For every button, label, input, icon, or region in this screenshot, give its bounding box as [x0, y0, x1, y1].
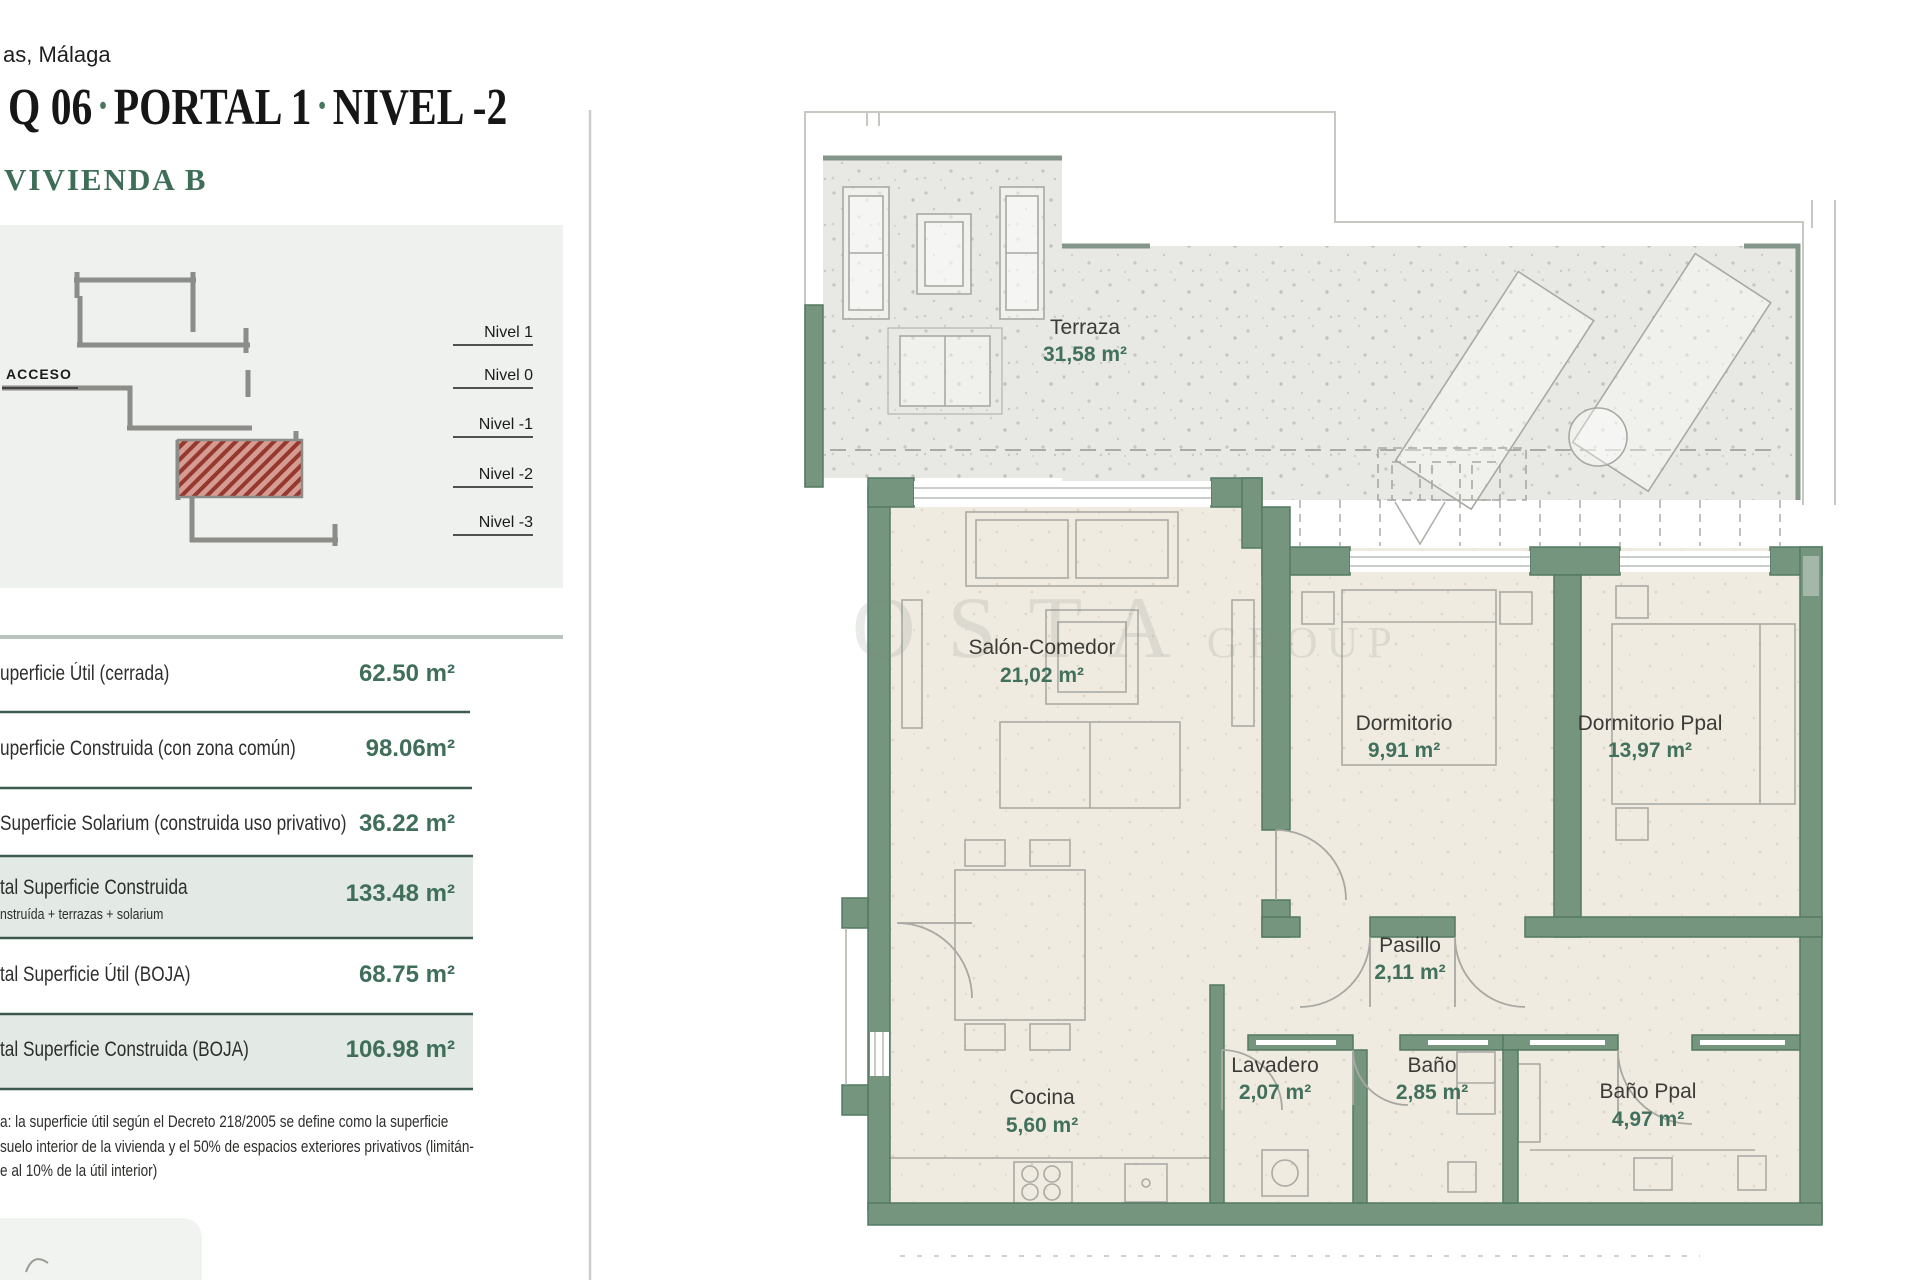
room-area-terraza: 31,58 m² — [965, 343, 1205, 367]
footnote-line: a: la superficie útil según el Decreto 2… — [0, 1112, 448, 1132]
table-rules — [0, 635, 563, 1089]
level-label-0: Nivel 0 — [433, 367, 533, 385]
table-row-label: tal Superficie Construida — [0, 876, 188, 900]
unit-subtitle: VIVIENDA B — [4, 162, 207, 198]
room-label-cocina: Cocina — [922, 1086, 1162, 1110]
stairs — [1300, 500, 1780, 546]
watermark-big-text: OSTA — [852, 580, 1203, 677]
room-label-pasillo: Pasillo — [1290, 934, 1530, 958]
level-label-minus3: Nivel -3 — [433, 514, 533, 532]
title-part-block: Q 06 — [8, 79, 92, 136]
location-text: as, Málaga — [3, 42, 111, 68]
title-dot-icon: · — [92, 81, 113, 130]
room-area-dormitorio-ppal: 13,97 m² — [1530, 739, 1770, 763]
table-row-value: 133.48 m² — [255, 880, 455, 908]
room-area-bano: 2,85 m² — [1312, 1081, 1552, 1105]
acceso-label: ACCESO — [6, 366, 72, 382]
room-label-salon-comedor: Salón-Comedor — [922, 636, 1162, 660]
level-label-minus1: Nivel -1 — [433, 416, 533, 434]
watermark-small-text: GROUP — [1207, 618, 1401, 667]
room-area-cocina: 5,60 m² — [922, 1114, 1162, 1138]
room-area-dormitorio: 9,91 m² — [1284, 739, 1524, 763]
room-label-terraza: Terraza — [965, 316, 1205, 340]
table-row-value: 36.22 m² — [255, 810, 455, 838]
floorplan-page: { "header": { "location": "as, Málaga", … — [0, 0, 1920, 1280]
footnote-line: e al 10% de la útil interior) — [0, 1161, 157, 1181]
section-diagram — [0, 225, 563, 588]
table-row-label: uperficie Útil (cerrada) — [0, 662, 169, 686]
table-row-label: uperficie Construida (con zona común) — [0, 737, 296, 761]
table-row-value: 98.06m² — [255, 735, 455, 763]
table-row-value: 62.50 m² — [255, 660, 455, 688]
room-area-pasillo: 2,11 m² — [1290, 961, 1530, 985]
room-label-dormitorio: Dormitorio — [1284, 712, 1524, 736]
corner-box — [0, 1218, 202, 1280]
room-label-dormitorio-ppal: Dormitorio Ppal — [1530, 712, 1770, 736]
title-dot-icon: · — [311, 81, 332, 130]
level-label-1: Nivel 1 — [433, 324, 533, 342]
table-row-label: tal Superficie Construida (BOJA) — [0, 1038, 249, 1062]
table-row-sublabel: nstruída + terrazas + solarium — [0, 906, 163, 923]
room-area-bano-ppal: 4,97 m² — [1528, 1108, 1768, 1132]
page-title: Q 06·PORTAL 1·NIVEL -2 — [8, 78, 507, 137]
table-row-label: tal Superficie Útil (BOJA) — [0, 963, 190, 987]
footnote-line: suelo interior de la vivienda y el 50% d… — [0, 1137, 474, 1157]
room-label-bano: Baño — [1312, 1054, 1552, 1078]
title-part-nivel: NIVEL -2 — [333, 79, 508, 136]
table-row-value: 68.75 m² — [255, 961, 455, 989]
room-area-salon-comedor: 21,02 m² — [922, 664, 1162, 688]
room-label-bano-ppal: Baño Ppal — [1528, 1080, 1768, 1104]
title-part-portal: PORTAL 1 — [114, 79, 312, 136]
table-row-value: 106.98 m² — [255, 1036, 455, 1064]
level-label-minus2: Nivel -2 — [433, 466, 533, 484]
